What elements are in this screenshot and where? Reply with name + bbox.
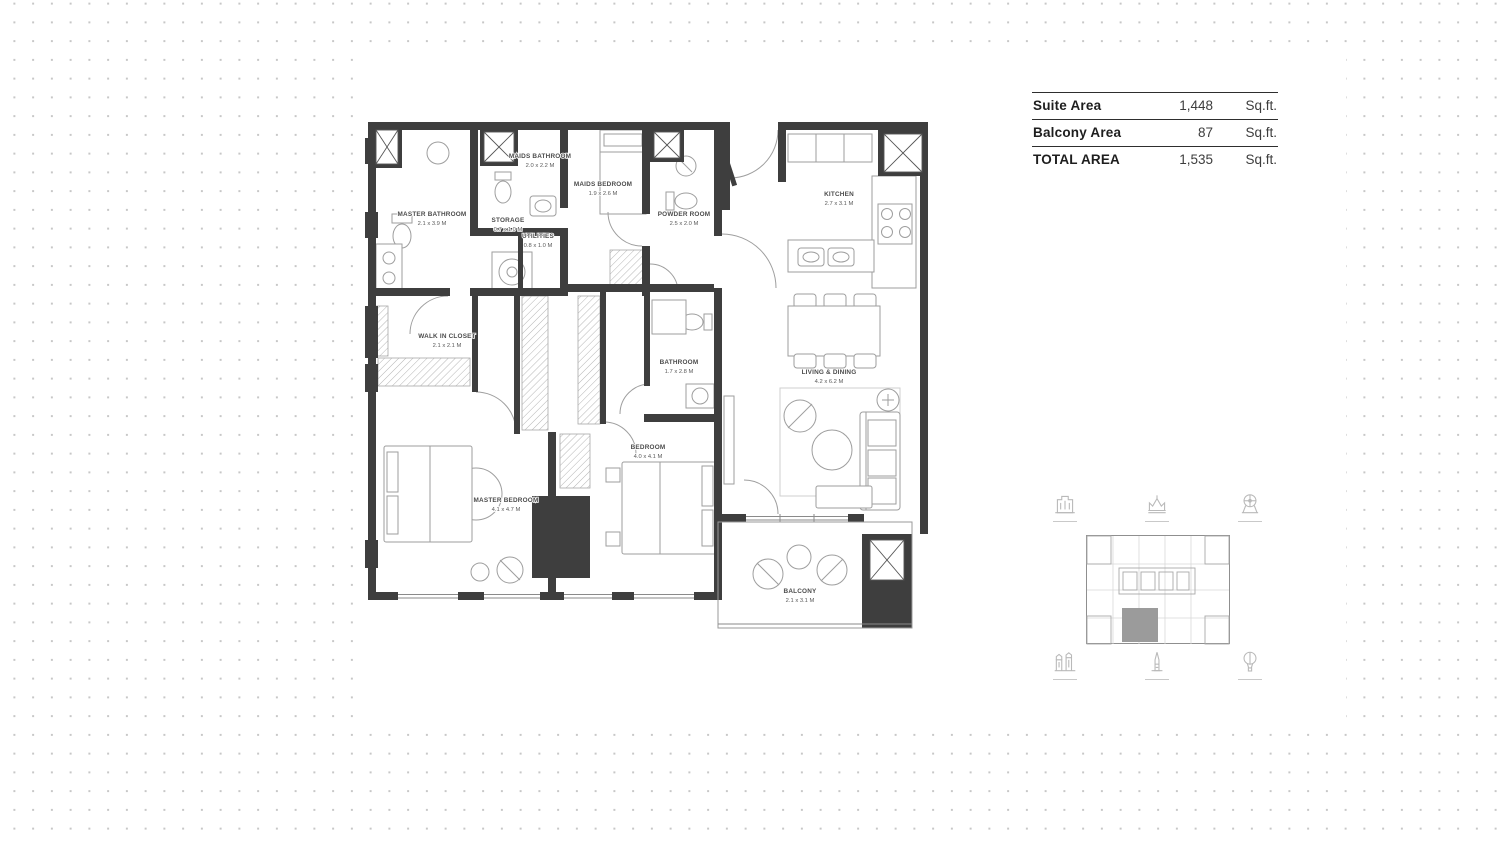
area-row-label: Balcony Area [1033, 125, 1155, 140]
room-label-powder-room: POWDER ROOM [658, 211, 711, 218]
poi-landmark [1140, 491, 1174, 522]
city-skyline-icon [1052, 649, 1078, 675]
room-label-bedroom: BEDROOM [631, 444, 666, 451]
poi-caption-line [1053, 679, 1077, 680]
svg-text:0.7 x 1.0 M: 0.7 x 1.0 M [494, 227, 523, 233]
poi-tower [1140, 649, 1174, 680]
area-row-value: 1,448 [1155, 98, 1213, 113]
table-row: TOTAL AREA 1,535 Sq.ft. [1032, 147, 1278, 173]
poi-city [1048, 649, 1082, 680]
page-background: MASTER BATHROOM 2.1 x 3.9 M MAIDS BATHRO… [0, 0, 1500, 842]
svg-text:4.1 x 4.7 M: 4.1 x 4.7 M [492, 507, 521, 513]
community-building-icon [1052, 491, 1078, 517]
area-row-label: Suite Area [1033, 98, 1155, 113]
area-row-unit: Sq.ft. [1213, 152, 1277, 167]
room-label-maids-bathroom: MAIDS BATHROOM [509, 153, 571, 160]
poi-community [1048, 491, 1082, 522]
area-row-label: TOTAL AREA [1033, 152, 1155, 167]
poi-caption-line [1238, 521, 1262, 522]
area-summary-table: Suite Area 1,448 Sq.ft. Balcony Area 87 … [1032, 92, 1278, 173]
room-label-master-bedroom: MASTER BEDROOM [474, 497, 539, 504]
room-label-master-bathroom: MASTER BATHROOM [398, 211, 467, 218]
observation-wheel-icon [1237, 491, 1263, 517]
burj-tower-icon [1144, 649, 1170, 675]
room-label-balcony: BALCONY [784, 588, 818, 595]
area-row-value: 1,535 [1155, 152, 1213, 167]
hot-air-balloon-icon [1237, 649, 1263, 675]
poi-location [1233, 491, 1267, 522]
room-label-bathroom: BATHROOM [660, 359, 699, 366]
room-label-kitchen: KITCHEN [824, 191, 854, 198]
svg-text:2.1 x 3.9 M: 2.1 x 3.9 M [418, 221, 447, 227]
room-label-storage: STORAGE [492, 217, 525, 224]
poi-caption-line [1053, 521, 1077, 522]
svg-text:2.5 x 2.0 M: 2.5 x 2.0 M [670, 221, 699, 227]
poi-caption-line [1238, 679, 1262, 680]
svg-text:2.1 x 2.1 M: 2.1 x 2.1 M [433, 343, 462, 349]
poi-caption-line [1145, 521, 1169, 522]
room-label-walk-in-closet: WALK IN CLOSET [418, 333, 475, 340]
svg-text:0.8 x 1.0 M: 0.8 x 1.0 M [524, 243, 553, 249]
table-row: Balcony Area 87 Sq.ft. [1032, 120, 1278, 147]
svg-text:2.0 x 2.2 M: 2.0 x 2.2 M [526, 163, 555, 169]
area-row-unit: Sq.ft. [1213, 98, 1277, 113]
poi-caption-line [1145, 679, 1169, 680]
room-label-utilities: UTILITIES [522, 233, 555, 240]
svg-text:4.2 x 6.2 M: 4.2 x 6.2 M [815, 379, 844, 385]
keyplan-floor-plate [1085, 534, 1231, 646]
keyplan-unit-highlight [1122, 608, 1158, 642]
room-label-living-dining: LIVING & DINING [802, 369, 857, 376]
svg-text:2.7 x 3.1 M: 2.7 x 3.1 M [825, 201, 854, 207]
svg-text:1.9 x 2.6 M: 1.9 x 2.6 M [589, 191, 618, 197]
table-row: Suite Area 1,448 Sq.ft. [1032, 93, 1278, 120]
area-row-value: 87 [1155, 125, 1213, 140]
svg-text:4.0 x 4.1 M: 4.0 x 4.1 M [634, 454, 663, 460]
poi-balloon [1233, 649, 1267, 680]
svg-text:2.1 x 3.1 M: 2.1 x 3.1 M [786, 598, 815, 604]
svg-text:1.7 x 2.8 M: 1.7 x 2.8 M [665, 369, 694, 375]
landmark-crown-icon [1144, 491, 1170, 517]
room-label-maids-bedroom: MAIDS BEDROOM [574, 181, 632, 188]
floorplan-drawing: MASTER BATHROOM 2.1 x 3.9 M MAIDS BATHRO… [365, 118, 935, 633]
area-row-unit: Sq.ft. [1213, 125, 1277, 140]
